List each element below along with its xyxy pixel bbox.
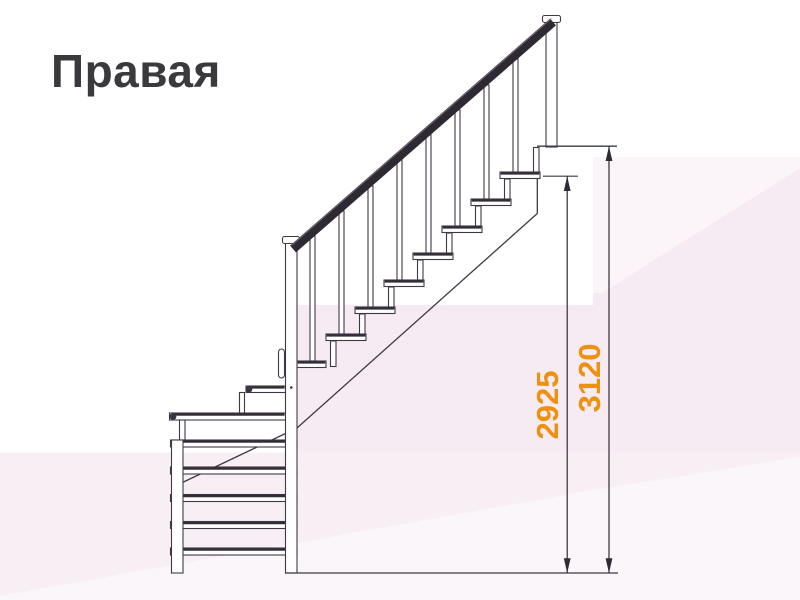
post-screw <box>290 386 293 389</box>
tread-end-cap <box>246 386 253 393</box>
baluster <box>484 85 489 199</box>
winder-tread <box>246 386 286 393</box>
baluster <box>426 135 431 253</box>
baluster <box>339 211 344 334</box>
baluster <box>310 236 315 361</box>
riser <box>331 341 337 367</box>
winder-baluster <box>240 393 245 414</box>
tread <box>471 199 511 206</box>
winder-tread <box>170 413 286 420</box>
baluster <box>455 110 460 226</box>
baluster <box>368 186 373 307</box>
post-bracket <box>279 349 285 378</box>
top-newel-post <box>546 22 557 147</box>
rail-bar <box>171 495 298 502</box>
tread <box>413 253 453 260</box>
tread <box>442 226 482 233</box>
staircase-diagram-page: 2925 3120 Правая <box>0 0 800 600</box>
winder-support <box>180 420 186 440</box>
tread <box>500 172 540 179</box>
tread <box>326 334 366 341</box>
tread <box>297 361 326 368</box>
dimension-label-2925: 2925 <box>530 371 565 440</box>
left-post <box>172 440 184 573</box>
central-newel-post <box>286 243 298 573</box>
page-title: Правая <box>51 44 221 98</box>
rail-bar <box>171 440 298 447</box>
rail-bar <box>171 522 298 529</box>
rail-bar <box>171 548 298 555</box>
baluster <box>397 160 402 280</box>
dimension-label-3120: 3120 <box>572 344 607 413</box>
rail-bar <box>171 467 298 474</box>
tread-end-cap <box>170 413 177 420</box>
tread <box>384 280 424 287</box>
tread <box>355 307 395 314</box>
baluster <box>513 59 518 172</box>
